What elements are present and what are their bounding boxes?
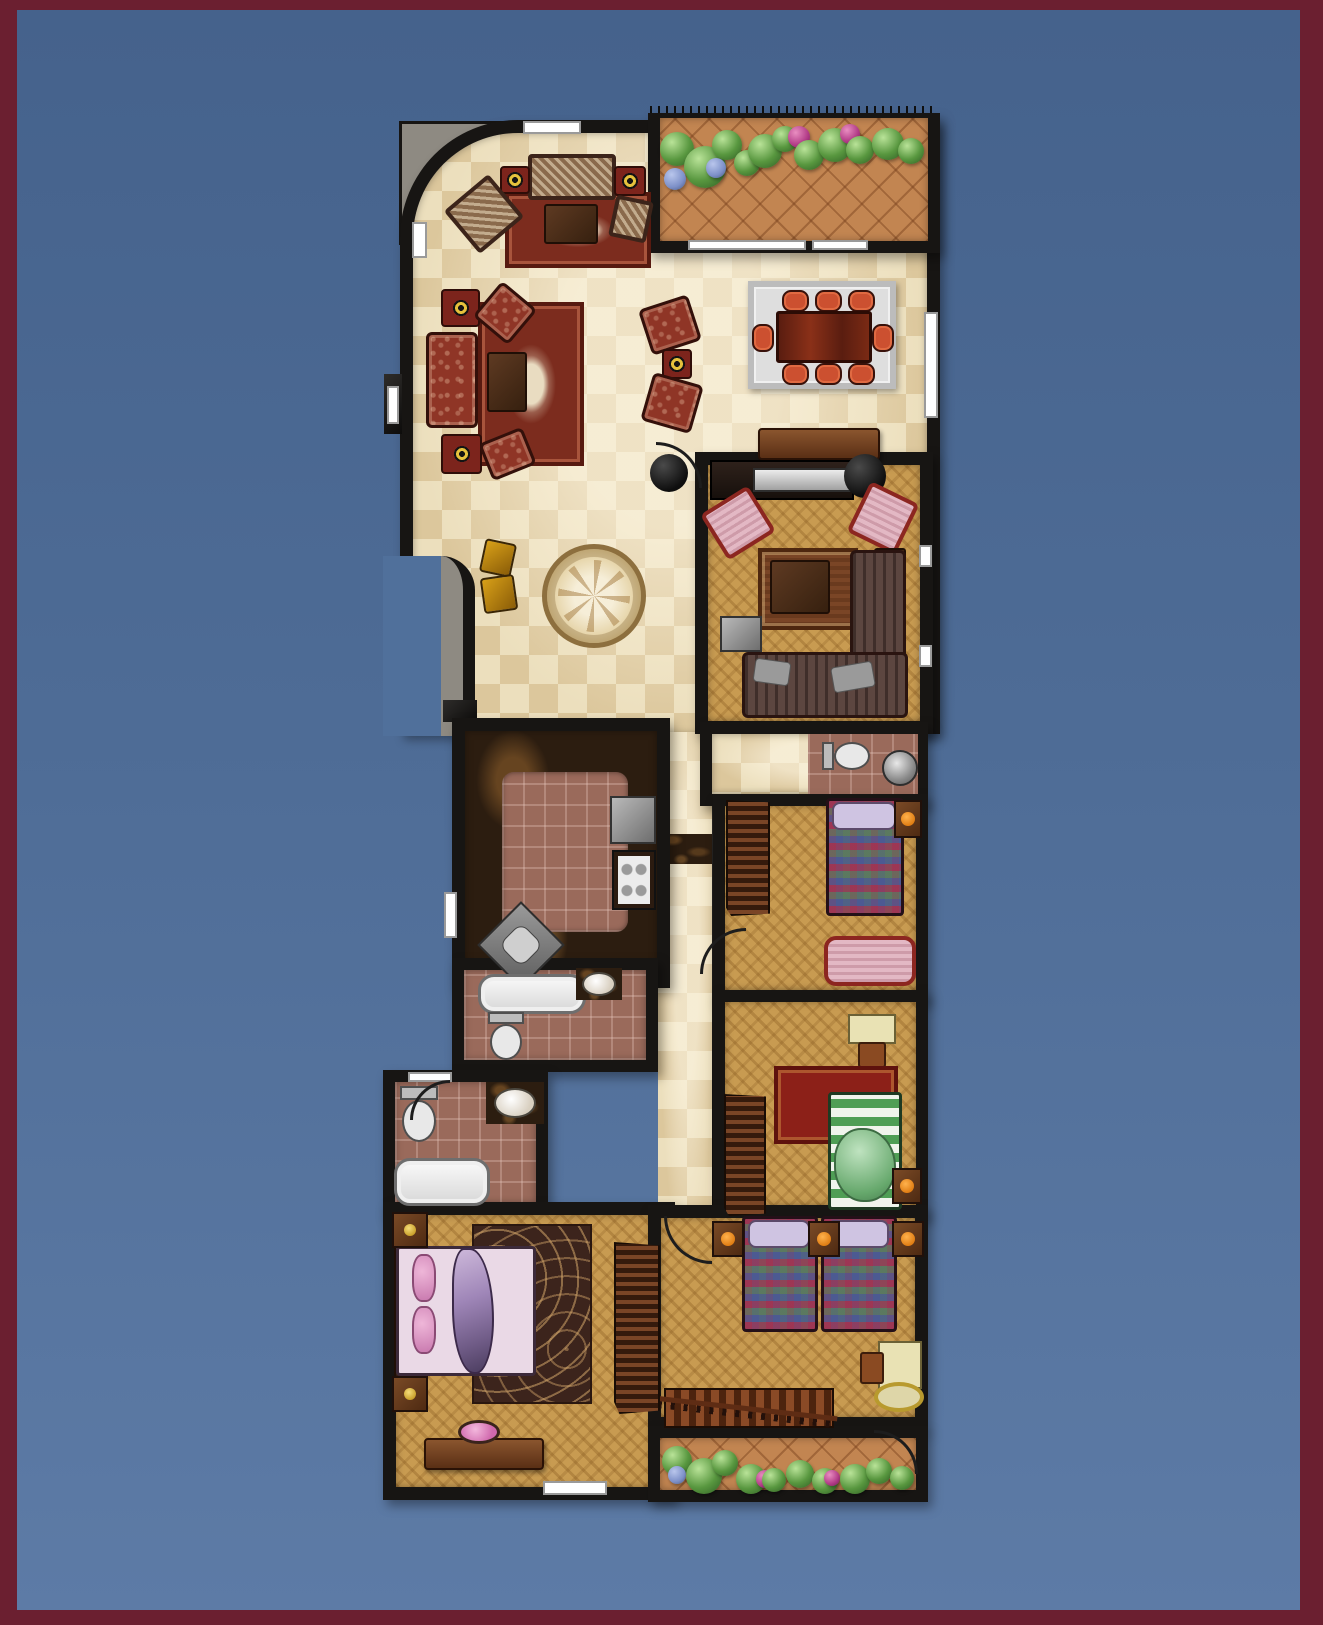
master-nightstand-1	[392, 1212, 428, 1248]
loveseat-kid1	[824, 936, 916, 986]
window-family-2	[919, 645, 932, 667]
yellow-stool-2	[480, 574, 519, 614]
ottoman-target-1	[500, 166, 530, 194]
master-pillow-1	[412, 1254, 436, 1302]
stove	[612, 850, 656, 910]
dining-chair	[872, 324, 894, 352]
plant	[890, 1466, 914, 1490]
nightstand	[712, 1221, 744, 1257]
blanket-kid2	[834, 1128, 896, 1202]
plant	[898, 138, 924, 164]
sink-1	[582, 972, 616, 996]
nightstand	[808, 1221, 840, 1257]
dresser-mirror	[458, 1420, 500, 1444]
balcony-sliding-door-1	[688, 240, 806, 250]
desk-kid2	[848, 1014, 896, 1044]
ottoman-target-2	[614, 166, 646, 196]
window-left-2	[387, 386, 399, 424]
dining-chair	[848, 290, 875, 312]
toilet-1-tank	[488, 1012, 524, 1024]
window-family-1	[919, 545, 932, 567]
coffee-table-top	[544, 204, 598, 244]
refrigerator	[610, 796, 656, 844]
window-master	[543, 1481, 607, 1495]
wardrobe-kid2	[724, 1094, 766, 1216]
dining-chair	[848, 363, 875, 385]
bathtub-2	[394, 1158, 490, 1206]
sofa-top	[528, 154, 616, 200]
ottoman-target-4	[441, 434, 482, 474]
sofa-pillow	[753, 658, 792, 687]
kitchen-door	[444, 892, 457, 938]
master-pillow-2	[412, 1306, 436, 1354]
round-rug-twin	[874, 1382, 924, 1412]
dining-chair	[815, 290, 842, 312]
dining-table	[776, 311, 872, 363]
sofa-left	[426, 332, 478, 428]
toilet-3-bowl	[834, 742, 870, 770]
toilet-1-bowl	[490, 1024, 522, 1060]
window-dining	[924, 312, 938, 418]
side-table-gray	[720, 616, 762, 652]
tv-screen	[753, 468, 851, 492]
tv-coffee-table	[770, 560, 830, 614]
plant	[706, 158, 726, 178]
entry-door	[523, 121, 581, 134]
plant	[786, 1460, 814, 1488]
coffee-table-left	[487, 352, 527, 412]
wardrobe-kid1	[726, 800, 770, 916]
bathtub-1	[478, 974, 586, 1014]
plant	[712, 1450, 738, 1476]
toilet-3-tank	[822, 742, 834, 770]
master-wardrobe	[614, 1242, 660, 1414]
plant	[866, 1458, 892, 1484]
sink-2	[494, 1088, 536, 1118]
nightstand	[894, 800, 922, 838]
plant	[664, 168, 686, 190]
plant	[762, 1468, 786, 1492]
dining-chair	[782, 363, 809, 385]
dining-chair	[782, 290, 809, 312]
floor-plan-canvas	[0, 0, 1323, 1625]
plant	[668, 1466, 686, 1484]
pillow-kid1	[832, 802, 896, 830]
desk-chair-kid2	[858, 1042, 886, 1068]
balcony-sliding-door-2	[812, 240, 868, 250]
flower	[824, 1470, 840, 1486]
window-left-1	[412, 222, 427, 258]
plant	[846, 136, 874, 164]
floor-medallion	[542, 544, 646, 648]
dining-chair	[752, 324, 774, 352]
twin-pillow-1	[748, 1220, 810, 1248]
dining-chair	[815, 363, 842, 385]
round-basin	[882, 750, 918, 786]
nightstand	[892, 1168, 922, 1204]
nightstand	[892, 1221, 924, 1257]
master-nightstand-2	[392, 1376, 428, 1412]
ottoman-target-3	[441, 289, 480, 327]
desk-chair-twin	[860, 1352, 884, 1384]
exterior-notch	[383, 556, 445, 736]
